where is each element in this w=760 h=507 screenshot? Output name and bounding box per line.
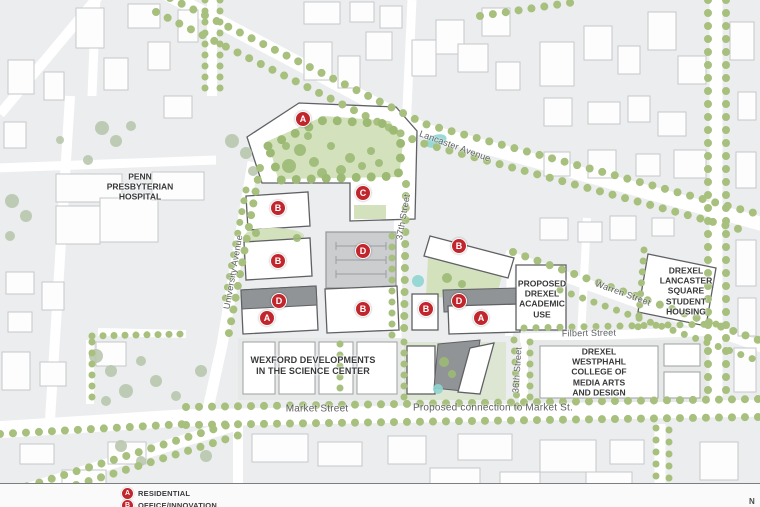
zone-marker-d-6: D (271, 293, 287, 309)
zone-marker-d-10: D (451, 293, 467, 309)
legend-label-office-innovation: OFFICE/INNOVATION (138, 501, 217, 507)
zone-marker-b-9: B (418, 301, 434, 317)
zone-marker-a-0: A (295, 111, 311, 127)
zone-marker-b-8: B (355, 301, 371, 317)
map-footer: A RESIDENTIAL B OFFICE/INNOVATION (0, 483, 760, 507)
street-label-proposed-connection: Proposed connection to Market St. (413, 403, 573, 414)
zone-marker-a-7: A (259, 310, 275, 326)
area-label-drexel-westphahl: DREXEL WESTPHAHL COLLEGE OF MEDIA ARTS A… (571, 347, 626, 398)
legend-item-office-innovation: B OFFICE/INNOVATION (121, 499, 217, 507)
area-label-wexford-developments: WEXFORD DEVELOPMENTS IN THE SCIENCE CENT… (250, 355, 375, 377)
area-label-drexel-lancaster-square: DREXEL LANCASTER SQUARE STUDENT HOUSING (660, 266, 712, 317)
zone-marker-b-3: B (270, 253, 286, 269)
street-label-filbert-street: Filbert Street (562, 328, 616, 339)
map-canvas (0, 0, 760, 507)
legend-label-residential: RESIDENTIAL (138, 489, 190, 498)
legend-marker-b: B (121, 499, 134, 507)
street-label-market-street: Market Street (286, 404, 349, 415)
zone-marker-a-11: A (473, 310, 489, 326)
site-plan-map: Lancaster Avenue 37th Street University … (0, 0, 760, 507)
zone-marker-b-1: B (270, 200, 286, 216)
north-indicator: N (749, 497, 755, 506)
zone-marker-b-5: B (451, 238, 467, 254)
zone-marker-c-2: C (355, 185, 371, 201)
area-label-penn-presbyterian-hospital: PENN PRESBYTERIAN HOSPITAL (107, 172, 174, 203)
area-label-proposed-drexel-academic: PROPOSED DREXEL ACADEMIC USE (518, 279, 566, 320)
zone-marker-d-4: D (355, 243, 371, 259)
